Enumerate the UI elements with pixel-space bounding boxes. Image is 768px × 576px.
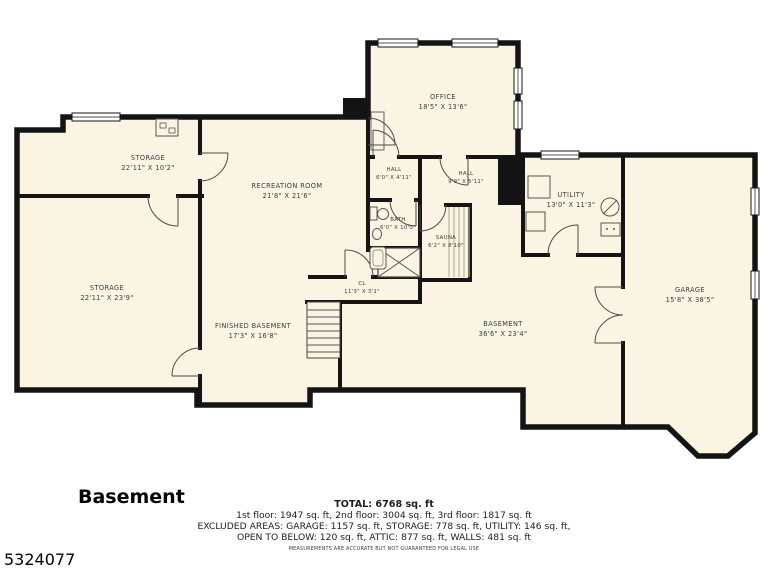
room-label-closet: CL [358,281,365,287]
room-dims-sauna: 6'2" X 8'10" [428,243,464,249]
room-label-utility: UTILITY [557,191,585,199]
room-label-storage-lower: STORAGE [90,284,124,292]
area-summary: TOTAL: 6768 sq. ft 1st floor: 1947 sq. f… [0,499,768,552]
room-dims-recreation: 21'8" X 21'6" [263,192,312,200]
summary-floors: 1st floor: 1947 sq. ft, 2nd floor: 3004 … [0,510,768,521]
room-label-office: OFFICE [430,93,456,101]
room-label-bath: BATH [390,217,406,223]
listing-id: 5324077 [4,550,75,569]
window [514,101,522,129]
window [452,39,498,47]
window [751,271,759,299]
room-dims-finished-basement: 17'3" X 16'8" [229,332,278,340]
room-dims-utility: 13'0" X 11'3" [547,201,596,209]
chimney-mass [498,157,523,205]
vent-box [156,119,178,136]
room-dims-hall-small: 6'0" X 4'11" [376,175,412,181]
electrical-panel [601,223,620,236]
summary-excluded-1: EXCLUDED AREAS: GARAGE: 1157 sq. ft, STO… [0,521,768,532]
summary-total: TOTAL: 6768 sq. ft [0,499,768,510]
room-dims-garage: 15'8" X 38'5" [666,296,715,304]
tub [370,247,386,269]
water-heater [601,198,619,216]
room-dims-bath: 6'0" X 10'0" [380,225,416,231]
utility-equipment [526,212,545,231]
room-label-hall-main: HALL [459,171,474,177]
staircase [307,302,340,358]
summary-disclaimer: MEASUREMENTS ARE ACCURATE BUT NOT GUARAN… [0,546,768,552]
room-label-garage: GARAGE [675,286,705,294]
room-dims-office: 18'5" X 13'6" [419,103,468,111]
room-dims-hall-main: 9'9" X 5'11" [448,179,484,185]
room-label-sauna: SAUNA [436,235,456,241]
wall-mass [343,98,368,117]
room-label-hall-small: HALL [387,167,402,173]
utility-equipment [528,176,550,198]
window [514,68,522,94]
window [751,188,759,215]
room-label-basement: BASEMENT [483,320,523,328]
summary-excluded-2: OPEN TO BELOW: 120 sq. ft, ATTIC: 877 sq… [0,532,768,543]
window [541,151,579,159]
floor-plan-page: STORAGE 22'11" X 10'2" STORAGE 22'11" X … [0,0,768,576]
room-dims-closet: 11'3" X 3'1" [344,289,380,295]
window [378,39,418,47]
room-dims-storage-lower: 22'11" X 23'9" [80,294,133,302]
room-label-recreation: RECREATION ROOM [252,182,323,190]
room-label-finished-basement: FINISHED BASEMENT [215,322,292,330]
room-label-storage-upper: STORAGE [131,154,165,162]
room-dims-storage-upper: 22'11" X 10'2" [121,164,174,172]
window [72,113,120,121]
room-dims-basement: 36'6" X 23'4" [479,330,528,338]
